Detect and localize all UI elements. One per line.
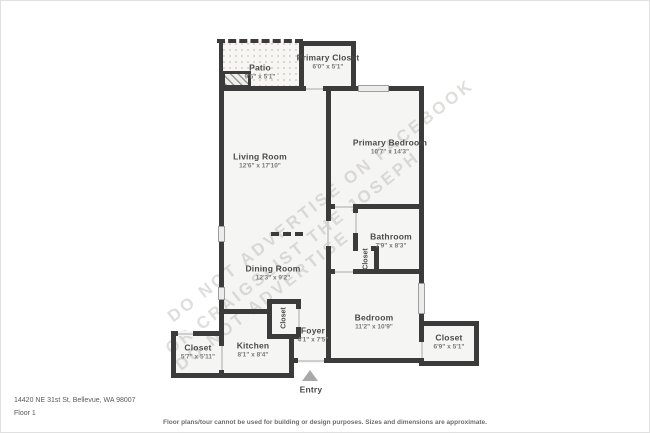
wall bbox=[326, 209, 331, 221]
room-dims: 6'9" x 5'1" bbox=[434, 343, 465, 351]
door-line bbox=[306, 88, 323, 90]
disclaimer-text: Floor plans/tour cannot be used for buil… bbox=[163, 419, 487, 426]
door-line bbox=[421, 342, 423, 359]
room-name: Kitchen bbox=[237, 341, 270, 352]
room-dims: 4'1" x 7'5" bbox=[298, 336, 329, 344]
room-name: Primary Bedroom bbox=[353, 138, 427, 149]
room-label-bathroom-closet: Closet bbox=[363, 248, 370, 269]
room-label-primary-closet: Primary Closet 6'0" x 5'1" bbox=[297, 53, 360, 72]
room-label-dining-room: Dining Room 12'3" x 9'2" bbox=[245, 264, 300, 283]
wall bbox=[219, 309, 272, 314]
wall bbox=[419, 361, 479, 366]
room-label-primary-bedroom: Primary Bedroom 10'7" x 14'3" bbox=[353, 138, 427, 157]
wall bbox=[296, 299, 301, 309]
door-line bbox=[298, 309, 300, 327]
room-label-foyer-closet: Closet bbox=[281, 307, 288, 328]
floor-plan-canvas: DO NOT ADVERTISE ON FACEBOOK OR CRAIGSLI… bbox=[0, 0, 650, 433]
room-name: Bathroom bbox=[370, 232, 412, 243]
wall bbox=[419, 91, 424, 274]
door-line bbox=[178, 333, 193, 335]
room-divider-dashed bbox=[271, 232, 303, 236]
room-dims: 12'6" x 17'10" bbox=[233, 162, 287, 170]
room-label-bathroom: Bathroom 7'9" x 8'3" bbox=[370, 232, 412, 251]
entry-text: Entry bbox=[300, 385, 323, 396]
room-dims: 5'7" x 5'11" bbox=[181, 353, 215, 361]
door-line bbox=[221, 346, 223, 370]
door-line bbox=[327, 221, 329, 246]
room-label-bedroom: Bedroom 11'2" x 10'9" bbox=[355, 313, 394, 332]
room-label-kitchen: Kitchen 8'1" x 8'4" bbox=[237, 341, 270, 360]
room-label-entry-closet: Closet 5'7" x 5'11" bbox=[181, 343, 215, 362]
room-label-living-room: Living Room 12'6" x 17'10" bbox=[233, 152, 287, 171]
wall bbox=[299, 41, 356, 46]
floor-label: Floor 1 bbox=[14, 410, 36, 417]
patio-dashed-edge bbox=[217, 39, 303, 43]
room-name: Bedroom bbox=[355, 313, 394, 324]
door-line bbox=[335, 271, 353, 273]
room-dims: 10'7" x 14'3" bbox=[353, 148, 427, 156]
wall bbox=[474, 321, 479, 366]
wall bbox=[289, 334, 294, 378]
room-name: Patio bbox=[245, 63, 276, 74]
room-dims: 7'9" x 8'3" bbox=[370, 242, 412, 250]
wall bbox=[419, 321, 479, 326]
window bbox=[218, 287, 225, 300]
window bbox=[418, 283, 425, 314]
room-label-patio: Patio 9'5" x 5'1" bbox=[245, 63, 276, 82]
room-dims: 8'1" x 8'4" bbox=[237, 351, 270, 359]
room-name: Primary Closet bbox=[297, 53, 360, 64]
wall bbox=[326, 91, 331, 204]
room-dims: 12'3" x 9'2" bbox=[245, 274, 300, 282]
window bbox=[218, 226, 225, 242]
door-line bbox=[298, 360, 324, 362]
room-name: Dining Room bbox=[245, 264, 300, 275]
room-name: Closet bbox=[181, 343, 215, 354]
wall bbox=[171, 373, 294, 378]
room-label-foyer: Foyer 4'1" x 7'5" bbox=[298, 326, 329, 345]
entry-arrow-icon bbox=[302, 370, 318, 381]
room-name: Foyer bbox=[298, 326, 329, 337]
room-dims: 9'5" x 5'1" bbox=[245, 73, 276, 81]
door-line bbox=[355, 213, 357, 233]
window bbox=[358, 85, 389, 92]
address-text: 14420 NE 31st St, Bellevue, WA 98007 bbox=[14, 397, 136, 404]
entry-label: Entry bbox=[300, 385, 323, 396]
door-line bbox=[335, 206, 353, 208]
room-name: Closet bbox=[434, 333, 465, 344]
room-name: Living Room bbox=[233, 152, 287, 163]
wall bbox=[267, 299, 272, 339]
room-dims: 6'0" x 5'1" bbox=[297, 63, 360, 71]
wall bbox=[171, 331, 176, 378]
room-dims: 11'2" x 10'9" bbox=[355, 323, 394, 331]
room-label-bedroom-closet: Closet 6'9" x 5'1" bbox=[434, 333, 465, 352]
